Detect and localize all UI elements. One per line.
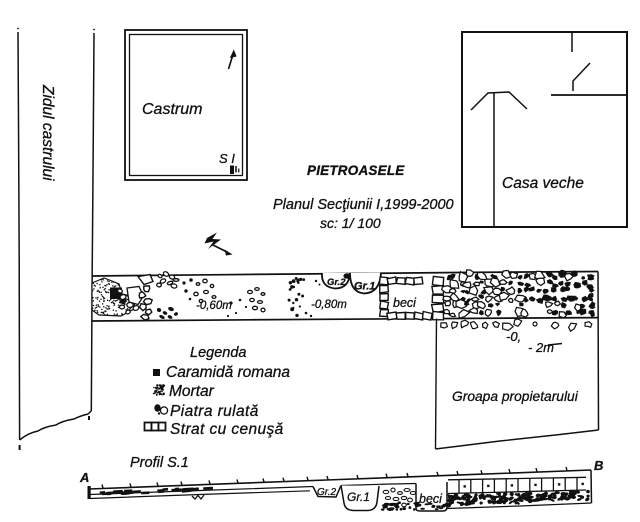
svg-text:Profil S.1: Profil S.1 [130,455,189,471]
svg-text:Gr.1: Gr.1 [354,281,375,293]
svg-text:B: B [594,458,603,473]
svg-text:Casa veche: Casa veche [502,175,584,192]
svg-text:Planul Secţiunii I,1999-2000: Planul Secţiunii I,1999-2000 [273,197,454,213]
svg-text:A: A [79,470,89,485]
svg-text:Gr.2: Gr.2 [317,487,337,498]
svg-text:- 2m: - 2m [528,340,554,355]
svg-text:-0,: -0, [506,329,521,344]
svg-text:beci: beci [393,296,417,310]
svg-text:Castrum: Castrum [142,101,202,118]
svg-text:sc: 1/ 100: sc: 1/ 100 [320,215,381,231]
svg-text:Mortar: Mortar [169,383,215,400]
svg-text:S I: S I [219,151,235,166]
svg-text:Gr.1: Gr.1 [347,490,370,504]
svg-text:Caramidă romana: Caramidă romana [166,364,290,381]
svg-text:Strat cu cenuşă: Strat cu cenuşă [170,421,284,438]
svg-text:Piatra rulată: Piatra rulată [170,403,259,420]
svg-text:PIETROASELE: PIETROASELE [307,163,405,178]
svg-text:Zidul castrului: Zidul castrului [39,84,56,181]
svg-text:Gr.2: Gr.2 [327,277,346,288]
svg-text:-0,60m: -0,60m [196,300,232,312]
svg-text:Legenda: Legenda [190,345,246,361]
svg-text:Groapa propietarului: Groapa propietarului [452,389,579,404]
svg-text:-0,80m: -0,80m [311,299,347,311]
